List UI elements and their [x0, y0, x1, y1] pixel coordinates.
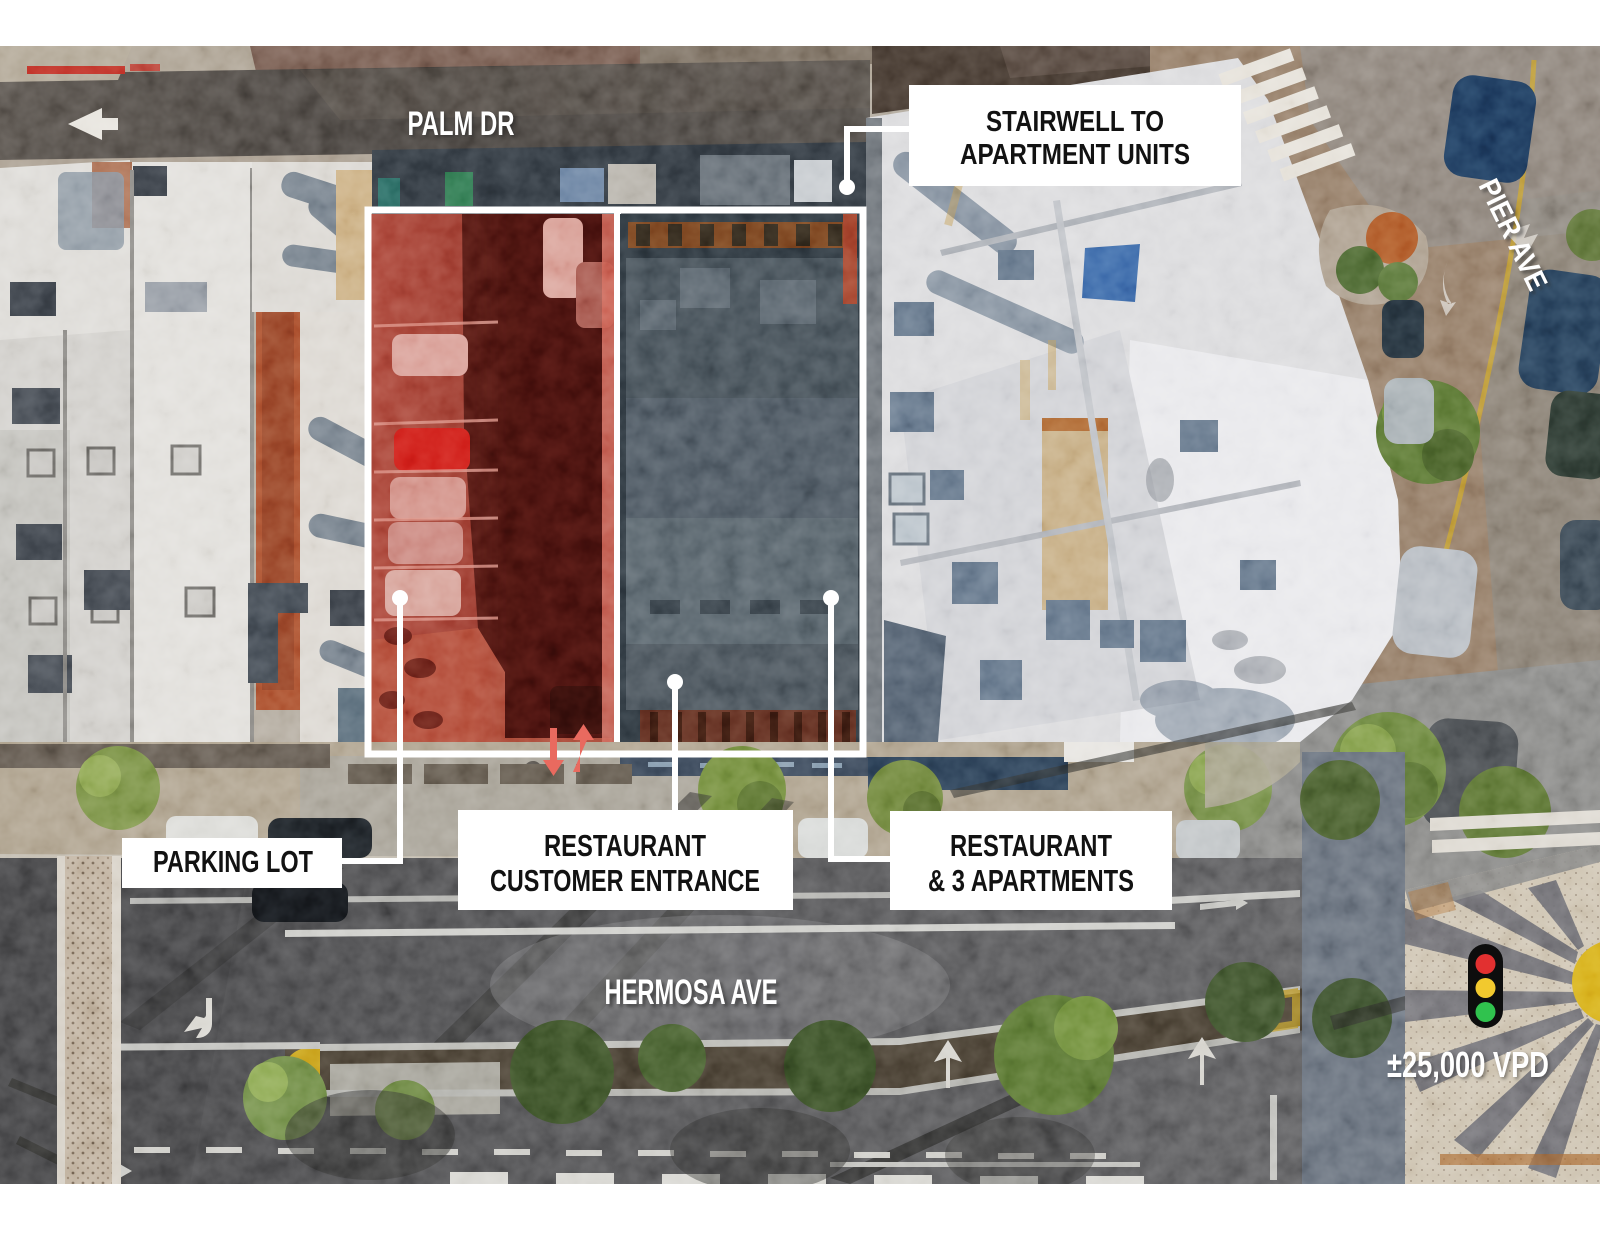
svg-text:PALM DR: PALM DR — [408, 105, 515, 143]
svg-text:PARKING LOT: PARKING LOT — [153, 844, 313, 879]
svg-text:APARTMENT UNITS: APARTMENT UNITS — [960, 139, 1190, 171]
svg-text:±25,000 VPD: ±25,000 VPD — [1387, 1044, 1549, 1085]
svg-text:CUSTOMER ENTRANCE: CUSTOMER ENTRANCE — [490, 863, 760, 898]
svg-text:HERMOSA AVE: HERMOSA AVE — [605, 973, 778, 1012]
svg-text:RESTAURANT: RESTAURANT — [544, 828, 706, 863]
svg-text:RESTAURANT: RESTAURANT — [950, 828, 1112, 863]
svg-text:STAIRWELL TO: STAIRWELL TO — [986, 106, 1164, 138]
svg-text:& 3 APARTMENTS: & 3 APARTMENTS — [928, 863, 1134, 898]
